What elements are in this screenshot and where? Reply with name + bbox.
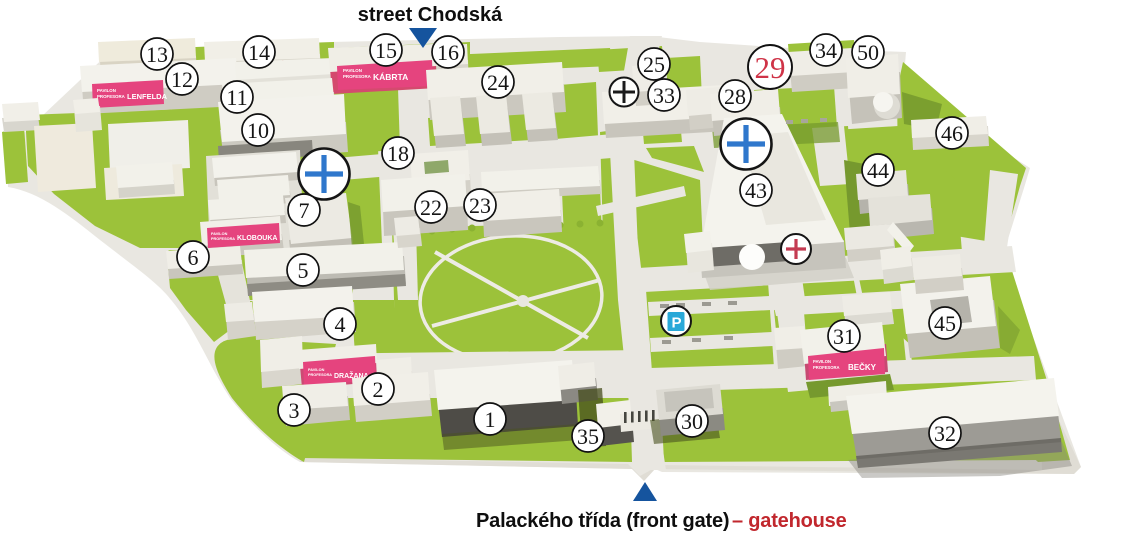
svg-text:24: 24 bbox=[487, 70, 509, 95]
svg-text:43: 43 bbox=[745, 178, 767, 203]
svg-text:7: 7 bbox=[299, 198, 310, 223]
svg-text:22: 22 bbox=[420, 195, 442, 220]
svg-text:LENFELDA: LENFELDA bbox=[127, 92, 168, 101]
svg-text:14: 14 bbox=[248, 40, 270, 65]
svg-text:46: 46 bbox=[941, 121, 963, 146]
svg-text:P: P bbox=[671, 315, 681, 332]
svg-text:12: 12 bbox=[171, 67, 193, 92]
svg-text:35: 35 bbox=[577, 424, 599, 449]
svg-text:11: 11 bbox=[226, 85, 247, 110]
svg-text:1: 1 bbox=[485, 407, 496, 432]
svg-text:PAVILON: PAVILON bbox=[813, 359, 831, 364]
svg-text:50: 50 bbox=[857, 40, 879, 65]
svg-text:33: 33 bbox=[653, 83, 675, 108]
svg-text:PAVILON: PAVILON bbox=[343, 68, 362, 73]
svg-text:PROFESORA: PROFESORA bbox=[308, 373, 332, 377]
svg-text:30: 30 bbox=[681, 409, 703, 434]
svg-text:16: 16 bbox=[437, 40, 459, 65]
svg-text:13: 13 bbox=[146, 42, 168, 67]
svg-text:PROFESORA: PROFESORA bbox=[211, 237, 235, 241]
svg-text:– gatehouse: – gatehouse bbox=[732, 510, 847, 532]
svg-text:32: 32 bbox=[934, 421, 956, 446]
svg-text:15: 15 bbox=[375, 38, 397, 63]
svg-text:3: 3 bbox=[289, 398, 300, 423]
svg-text:Palackého třída (front gate): Palackého třída (front gate) bbox=[476, 510, 729, 532]
svg-text:45: 45 bbox=[934, 311, 956, 336]
svg-text:4: 4 bbox=[335, 312, 346, 337]
svg-text:PROFESORA: PROFESORA bbox=[813, 365, 840, 370]
svg-text:PAVILON: PAVILON bbox=[97, 88, 116, 93]
svg-text:5: 5 bbox=[298, 258, 309, 283]
svg-text:25: 25 bbox=[643, 52, 665, 77]
svg-text:PROFESORA: PROFESORA bbox=[343, 74, 372, 79]
svg-text:10: 10 bbox=[247, 118, 269, 143]
svg-text:KLOBOUKA: KLOBOUKA bbox=[237, 235, 277, 242]
svg-text:street Chodská: street Chodská bbox=[358, 4, 503, 26]
svg-text:PAVILON: PAVILON bbox=[211, 232, 228, 236]
svg-text:PROFESORA: PROFESORA bbox=[97, 94, 126, 99]
svg-text:BEČKY: BEČKY bbox=[848, 363, 877, 372]
svg-text:23: 23 bbox=[469, 193, 491, 218]
svg-text:6: 6 bbox=[188, 245, 199, 270]
svg-text:18: 18 bbox=[387, 141, 409, 166]
svg-text:28: 28 bbox=[724, 84, 746, 109]
svg-text:31: 31 bbox=[833, 324, 855, 349]
svg-text:PAVILON: PAVILON bbox=[308, 368, 325, 372]
svg-text:29: 29 bbox=[755, 50, 786, 85]
svg-text:KÁBRTA: KÁBRTA bbox=[373, 72, 408, 82]
svg-text:44: 44 bbox=[867, 158, 889, 183]
svg-text:2: 2 bbox=[373, 377, 384, 402]
svg-text:34: 34 bbox=[815, 38, 837, 63]
